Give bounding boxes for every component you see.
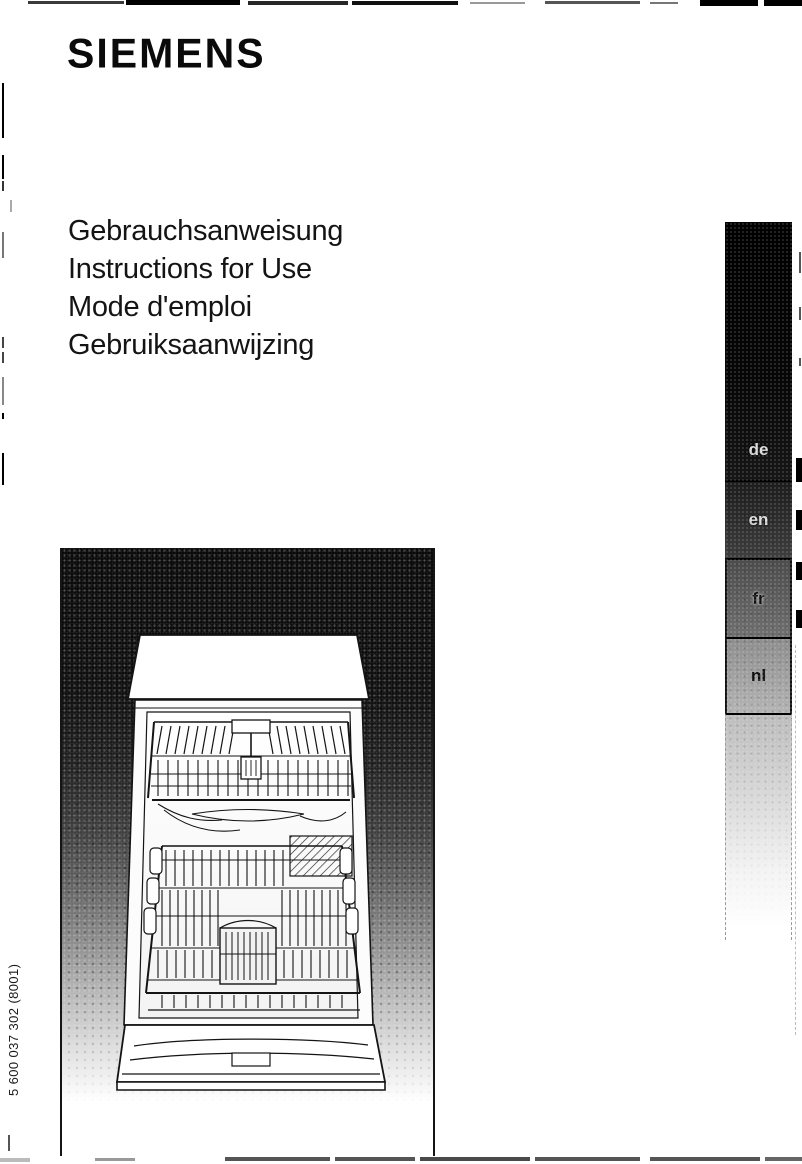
edge-mark [799,307,801,320]
crop-mark [0,1158,30,1162]
crop-mark [764,0,802,6]
edge-mark [10,200,12,212]
edge-mark [796,510,802,530]
crop-mark [545,1,640,4]
order-number: 5 600 037 302 (8001) [6,920,26,1096]
language-tab-label-de: de [749,440,769,460]
crop-mark [650,2,678,4]
crop-mark [352,1,458,5]
brand-logo: SIEMENS [67,30,266,78]
crop-mark [126,0,240,5]
title-english: Instructions for Use [68,250,343,288]
language-tab-de: de [725,222,792,480]
edge-mark [2,453,4,485]
crop-mark [650,1157,760,1161]
title-german: Gebrauchsanweisung [68,212,343,250]
language-tab-label-fr: fr [752,589,764,609]
edge-mark [799,358,801,366]
edge-mark [796,458,802,482]
language-tab-fr: fr [725,558,792,637]
cutlery-basket [220,921,276,985]
crop-mark [248,1,348,5]
language-tab-label-nl: nl [751,666,766,686]
edge-mark [8,1135,10,1151]
dishwasher-photo [60,548,435,1156]
open-door [117,1025,385,1090]
edge-mark [2,377,4,405]
title-french: Mode d'emploi [68,288,343,326]
crop-mark [95,1158,135,1161]
edge-mark [796,610,802,628]
title-block: Gebrauchsanweisung Instructions for Use … [68,212,343,364]
scanned-page: { "page": { "kind": "instruction manual … [0,0,802,1164]
title-dutch: Gebruiksaanwijzing [68,326,343,364]
language-index-strip: de en fr nl [725,222,792,940]
crop-mark [28,1,124,4]
crop-mark [470,2,525,4]
edge-mark [2,155,4,179]
edge-mark [799,252,801,273]
crop-mark [700,0,758,6]
edge-mark [2,83,4,138]
crop-mark [420,1157,530,1161]
crop-mark [535,1157,640,1161]
language-tab-label-en: en [749,510,769,530]
crop-mark [765,1157,802,1161]
edge-mark [795,645,796,1035]
crop-mark [335,1157,415,1161]
language-tab-en: en [725,480,792,558]
edge-mark [796,562,802,580]
language-strip-fade [725,713,792,940]
crop-mark [225,1157,330,1161]
dishwasher-illustration [62,548,433,1156]
edge-mark [2,232,4,258]
edge-mark [2,337,4,348]
edge-mark [2,413,4,419]
edge-mark [2,352,4,363]
edge-mark [2,181,4,191]
language-tab-nl: nl [725,637,792,713]
